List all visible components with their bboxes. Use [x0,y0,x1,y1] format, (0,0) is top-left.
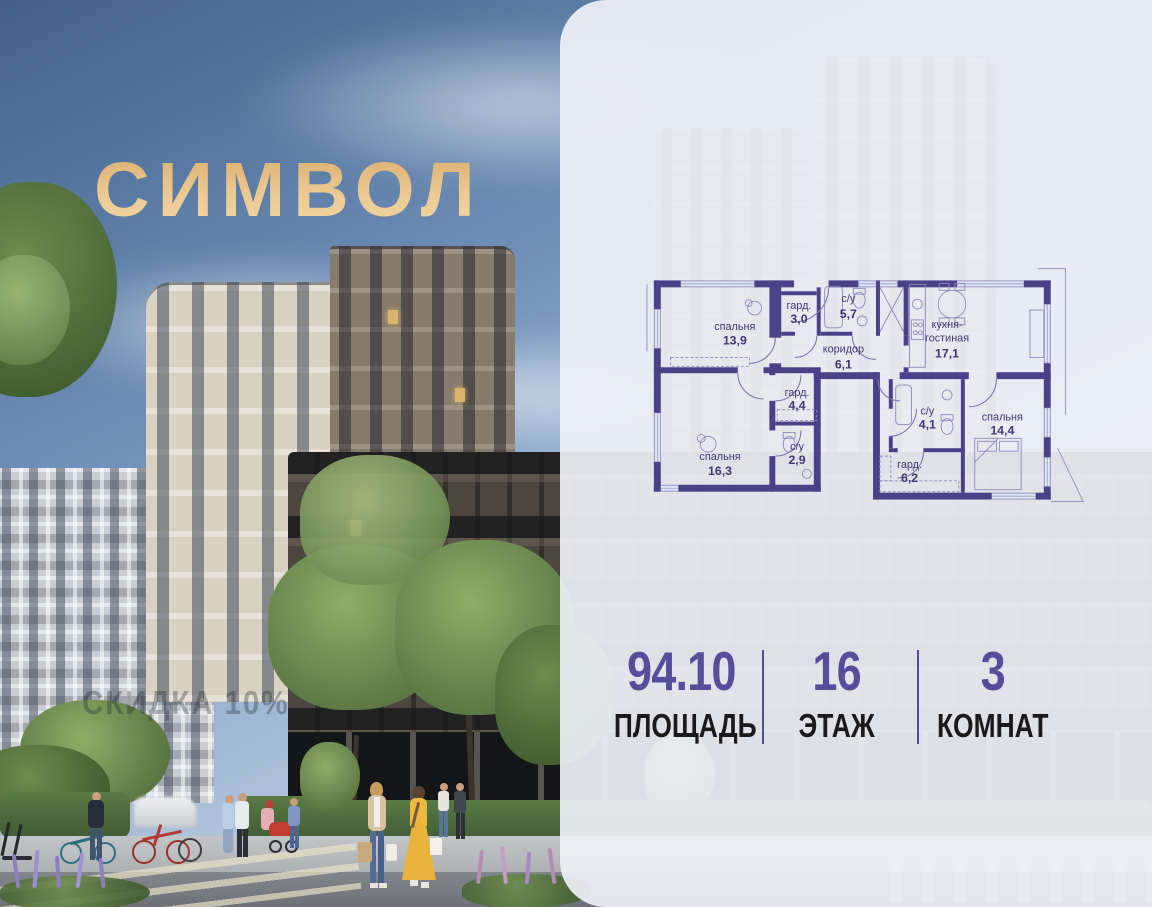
room-area: 3,0 [790,312,807,326]
stat-rooms: 3 КОМНАТ [908,644,1078,742]
room-label: спальня [699,451,740,463]
room-area: 5,7 [840,307,857,321]
stat-floor: 16 ЭТАЖ [752,644,922,742]
stat-rooms-value: 3 [981,644,1005,699]
stat-area: 94.10 ПЛОЩАДЬ [596,644,766,742]
room-area: 4,1 [919,417,936,431]
room-label: кухня- [931,319,963,331]
lit-window [388,310,398,324]
brand-logo: СИМВОЛ [94,146,483,235]
stat-rooms-label: КОМНАТ [937,709,1049,742]
floor-plan: спальня 13,9 гард. 3,0 с/у 5,7 коридор 6… [645,263,1105,515]
floor-plan-svg: спальня 13,9 гард. 3,0 с/у 5,7 коридор 6… [645,263,1105,515]
room-label: с/у [841,293,855,305]
room-label: коридор [823,343,864,355]
listing-card: СКИДКА 10% СИМВОЛ [0,0,1152,907]
person-yellow-dress [396,786,442,907]
room-area: 6,2 [901,471,918,485]
room-area: 16,3 [708,464,732,478]
room-label: гард. [787,300,812,312]
room-area: 6,1 [835,357,852,371]
person-couple [222,793,252,859]
photo-watermark: СКИДКА 10% [82,684,289,722]
stat-floor-label: ЭТАЖ [799,709,875,742]
flowers-left [0,852,150,907]
room-label: гард. [897,459,922,471]
lit-window [455,388,465,402]
person-jeans [288,798,302,850]
room-area: 13,9 [723,334,747,348]
room-area: 4,4 [788,399,805,413]
stat-floor-value: 16 [813,644,862,699]
room-area: 2,9 [788,453,805,467]
person-beige-jacket [358,782,398,906]
room-label: с/у [920,406,934,418]
room-label: спальня [982,412,1023,424]
stat-area-value: 94.10 [627,644,736,699]
vent-shaft [880,287,904,331]
room-label: гостиная [925,333,969,345]
room-area: 17,1 [935,346,959,360]
room-area: 14,4 [990,423,1014,437]
room-label: с/у [790,441,804,453]
stat-area-label: ПЛОЩАДЬ [614,709,757,742]
people-background [438,783,468,855]
apartment-info-panel[interactable]: спальня 13,9 гард. 3,0 с/у 5,7 коридор 6… [560,0,1152,907]
room-label: гард. [785,387,810,399]
room-label: спальня [714,321,755,333]
